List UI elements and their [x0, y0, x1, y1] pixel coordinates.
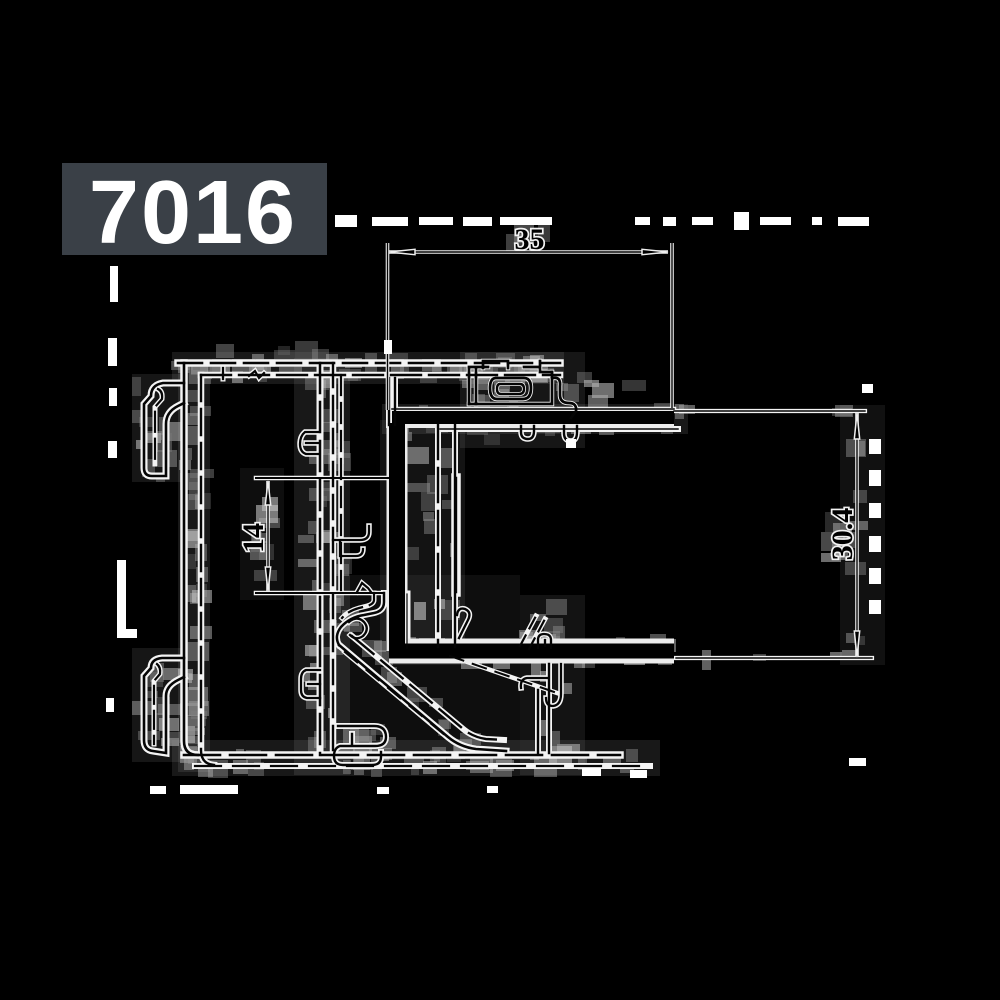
svg-text:7016: 7016 [89, 163, 297, 263]
svg-text:35: 35 [515, 223, 545, 256]
svg-text:30.4: 30.4 [826, 508, 859, 561]
svg-text:14: 14 [237, 523, 270, 553]
